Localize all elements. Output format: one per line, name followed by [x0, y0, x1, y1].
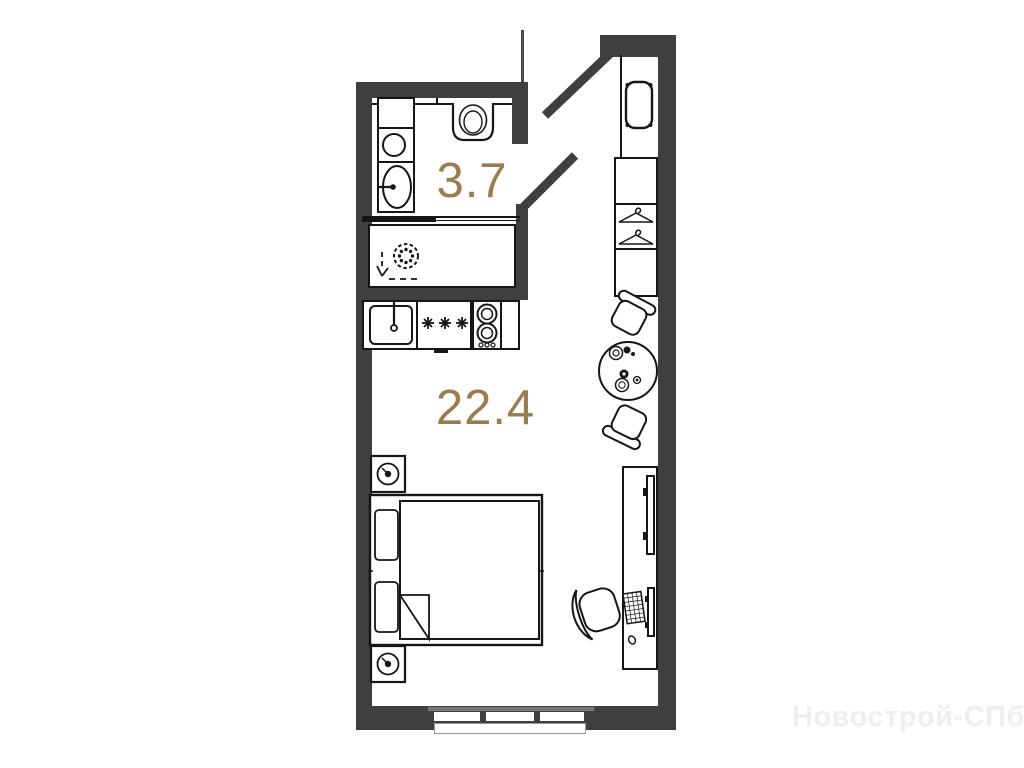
watermark: Новострой-СПб: [792, 701, 1016, 734]
toilet-icon: [450, 103, 496, 145]
wall-stub-line: [521, 30, 524, 82]
nightstand-icon: [369, 454, 407, 494]
office-chair-icon: [564, 580, 622, 644]
bathroom-area-label: 3.7: [422, 157, 522, 206]
window-frame-strip: [428, 707, 594, 711]
stove-icon: [472, 300, 502, 350]
mouse-icon: [627, 635, 636, 645]
keyboard-icon: [623, 591, 645, 623]
bathroom-counter-tick: [436, 98, 438, 105]
chair-icon: [605, 289, 657, 340]
wall-entry-diagonal-upper: [542, 50, 613, 119]
chair-icon: [601, 401, 653, 451]
hob-burners-icon: [418, 312, 472, 334]
window-pane: [540, 712, 584, 721]
floor-plan: 3.7 22.4 Новострой-СПб: [0, 0, 1024, 768]
window-pane: [434, 712, 480, 721]
pillow-icon: [375, 582, 398, 632]
tv-icon: [642, 474, 656, 556]
bathroom-fixtures: [377, 97, 415, 214]
wall-bathroom-top: [356, 82, 528, 98]
wall-bathroom-right-upper: [512, 98, 528, 144]
main-area-label: 22.4: [428, 384, 543, 433]
counter-handle: [434, 350, 448, 353]
nightstand-icon: [369, 644, 407, 684]
stool-icon: [622, 78, 656, 132]
cabinet-icon: [378, 98, 414, 128]
kitchen-sink-icon: [364, 300, 418, 350]
bed-icon: [368, 492, 546, 650]
window-sill: [434, 723, 586, 734]
shower-partition-glass: [436, 216, 520, 221]
wardrobe-icon: [614, 157, 658, 297]
computer-icon: [618, 584, 658, 648]
window-pane: [486, 712, 534, 721]
wall-entry-diagonal-lower: [519, 152, 578, 211]
slope-arrow-icon: [374, 250, 422, 284]
pillow-icon: [375, 510, 398, 560]
dining-set: [594, 294, 666, 448]
wall-top-right: [600, 35, 676, 57]
wall-bathroom-bottom: [356, 286, 528, 300]
shower-partition-solid: [362, 216, 436, 222]
